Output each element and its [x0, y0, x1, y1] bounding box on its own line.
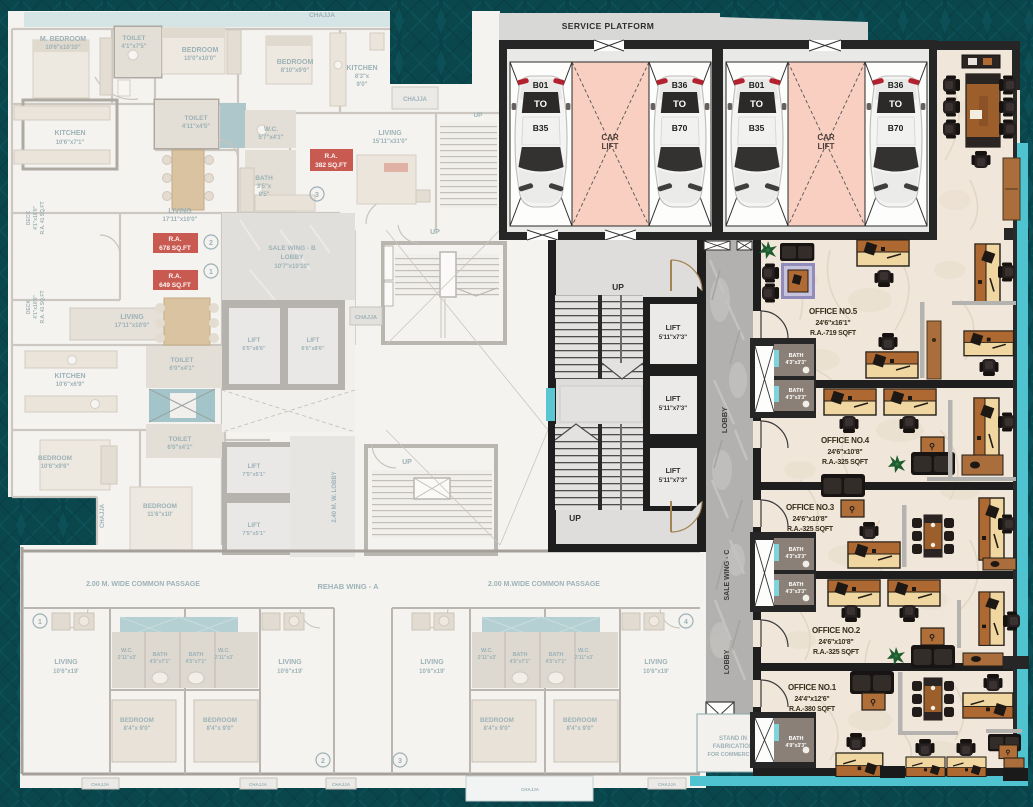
svg-text:TO: TO — [534, 99, 547, 110]
svg-text:STAND IN: STAND IN — [719, 736, 747, 742]
svg-text:CAR: CAR — [601, 133, 619, 142]
svg-text:CHAJJA: CHAJJA — [403, 97, 428, 103]
svg-text:8'10"x9'0": 8'10"x9'0" — [281, 68, 310, 74]
svg-text:R.A. 41 SQ.FT: R.A. 41 SQ.FT — [40, 290, 46, 323]
svg-text:8'4"x 9'0": 8'4"x 9'0" — [484, 726, 511, 732]
svg-text:BATH: BATH — [513, 652, 528, 658]
svg-text:2.40 M. W. LOBBY: 2.40 M. W. LOBBY — [332, 471, 338, 522]
svg-text:TOILET: TOILET — [171, 357, 194, 364]
svg-text:OFFICE NO.4: OFFICE NO.4 — [821, 436, 870, 445]
svg-text:B36: B36 — [672, 80, 688, 90]
svg-text:5'11"x7'3": 5'11"x7'3" — [659, 406, 687, 412]
svg-text:BEDROOM: BEDROOM — [480, 717, 514, 724]
svg-text:BEDROOM: BEDROOM — [277, 59, 314, 66]
svg-text:TO: TO — [673, 99, 686, 110]
svg-text:LIFT: LIFT — [666, 396, 681, 403]
svg-text:W.C.: W.C. — [264, 126, 278, 133]
svg-text:BATH: BATH — [255, 175, 273, 182]
svg-text:BEDROOM: BEDROOM — [120, 717, 154, 724]
svg-text:BATH: BATH — [789, 388, 804, 394]
svg-text:SERVICE PLATFORM: SERVICE PLATFORM — [562, 21, 655, 31]
svg-text:4'5"x7'1": 4'5"x7'1" — [509, 659, 531, 665]
svg-text:KITCHEN: KITCHEN — [54, 373, 85, 380]
svg-text:15'11"x31'0": 15'11"x31'0" — [373, 139, 408, 145]
svg-text:4'1"x10'0": 4'1"x10'0" — [33, 294, 39, 318]
svg-text:B01: B01 — [749, 80, 765, 90]
svg-text:5'7"x4'1": 5'7"x4'1" — [258, 135, 283, 141]
svg-text:10'6"x19': 10'6"x19' — [277, 669, 303, 675]
svg-text:LIVING: LIVING — [120, 314, 144, 321]
svg-text:TOILET: TOILET — [123, 35, 146, 42]
svg-text:B70: B70 — [888, 123, 904, 133]
svg-text:2: 2 — [321, 758, 325, 765]
svg-text:SALE WING - B: SALE WING - B — [268, 245, 316, 252]
svg-text:CHAJJA: CHAJJA — [249, 782, 268, 787]
svg-text:LIVING: LIVING — [378, 130, 402, 137]
svg-text:KITCHEN: KITCHEN — [54, 130, 85, 137]
svg-text:DECK: DECK — [26, 300, 32, 315]
svg-text:2'11"x3': 2'11"x3' — [118, 655, 136, 661]
svg-text:4'3"x3'3": 4'3"x3'3" — [785, 589, 807, 595]
svg-text:382 SQ.FT: 382 SQ.FT — [315, 162, 347, 169]
svg-text:R.A.-325 SQFT: R.A.-325 SQFT — [813, 649, 860, 656]
svg-text:5'11"x7'3": 5'11"x7'3" — [659, 478, 687, 484]
svg-text:LIFT: LIFT — [818, 142, 835, 151]
svg-text:BATH: BATH — [153, 652, 168, 658]
svg-text:R.A.-325 SQFT: R.A.-325 SQFT — [787, 526, 834, 533]
svg-text:CHAJJA: CHAJJA — [100, 503, 106, 528]
svg-text:CHAJJA: CHAJJA — [309, 12, 335, 19]
svg-text:UP: UP — [473, 112, 483, 119]
svg-text:R.A.: R.A. — [169, 273, 182, 280]
svg-text:LIFT: LIFT — [666, 468, 681, 475]
svg-text:CHAJJA: CHAJJA — [332, 782, 351, 787]
svg-text:LIFT: LIFT — [666, 325, 681, 332]
svg-text:678 SQ.FT: 678 SQ.FT — [159, 245, 191, 252]
svg-text:9'0": 9'0" — [357, 82, 368, 88]
svg-text:LIFT: LIFT — [602, 142, 619, 151]
svg-text:UP: UP — [402, 459, 412, 466]
svg-text:B35: B35 — [749, 123, 765, 133]
svg-text:4'1"x10'0": 4'1"x10'0" — [33, 205, 39, 229]
svg-text:R.A.: R.A. — [169, 236, 182, 243]
svg-text:CHAJJA: CHAJJA — [521, 787, 540, 792]
svg-text:6'6"x8'6": 6'6"x8'6" — [301, 346, 325, 352]
svg-text:R.A. 41 SQ.FT: R.A. 41 SQ.FT — [40, 201, 46, 234]
svg-text:2'11"x3': 2'11"x3' — [575, 655, 593, 661]
svg-text:10'6"x19': 10'6"x19' — [643, 669, 669, 675]
svg-text:OFFICE NO.3: OFFICE NO.3 — [786, 503, 835, 512]
svg-text:4'3"x3'3": 4'3"x3'3" — [785, 395, 807, 401]
svg-text:6'0"x4'1": 6'0"x4'1" — [169, 366, 194, 372]
svg-text:W.C.: W.C. — [481, 648, 493, 654]
svg-text:2: 2 — [209, 240, 213, 247]
svg-text:R.A.-719 SQFT: R.A.-719 SQFT — [810, 330, 857, 337]
svg-text:10'6"x19': 10'6"x19' — [53, 669, 79, 675]
svg-text:LIVING: LIVING — [278, 659, 302, 666]
svg-text:BATH: BATH — [549, 652, 564, 658]
svg-text:4'5"x7'1": 4'5"x7'1" — [545, 659, 567, 665]
svg-text:7'5"x5'1": 7'5"x5'1" — [242, 531, 266, 537]
svg-text:LIFT: LIFT — [248, 523, 261, 529]
svg-text:UP: UP — [612, 282, 624, 292]
svg-text:24'6"x10'8": 24'6"x10'8" — [827, 449, 862, 456]
svg-text:UP: UP — [430, 229, 440, 236]
svg-text:10'6"x6'9": 10'6"x6'9" — [56, 382, 85, 388]
svg-text:TOILET: TOILET — [169, 436, 192, 443]
svg-text:24'6"x10'8": 24'6"x10'8" — [792, 516, 827, 523]
svg-text:M. BEDROOM: M. BEDROOM — [40, 36, 86, 43]
svg-text:8'4"x 9'0": 8'4"x 9'0" — [207, 726, 234, 732]
svg-text:LIVING: LIVING — [168, 208, 192, 215]
svg-text:8'4"x 9'0": 8'4"x 9'0" — [567, 726, 594, 732]
svg-text:B01: B01 — [533, 80, 549, 90]
svg-text:2'11"x3': 2'11"x3' — [215, 655, 233, 661]
svg-text:8'4"x 9'0": 8'4"x 9'0" — [124, 726, 151, 732]
svg-text:UP: UP — [569, 513, 581, 523]
svg-text:17'11"x10'0": 17'11"x10'0" — [115, 323, 150, 329]
svg-text:10'6"x7'1": 10'6"x7'1" — [56, 140, 85, 146]
svg-text:LIVING: LIVING — [420, 659, 444, 666]
svg-text:B35: B35 — [533, 123, 549, 133]
svg-text:10'7"x10'10": 10'7"x10'10" — [274, 264, 309, 270]
svg-text:7'5"x5'1": 7'5"x5'1" — [242, 472, 266, 478]
svg-text:BATH: BATH — [789, 547, 804, 553]
svg-text:BATH: BATH — [789, 353, 804, 359]
svg-text:17'11"x10'0": 17'11"x10'0" — [163, 217, 198, 223]
svg-text:4: 4 — [684, 619, 688, 626]
svg-text:BATH: BATH — [789, 736, 804, 742]
svg-text:BEDROOM: BEDROOM — [143, 503, 177, 510]
svg-text:CHAJJA: CHAJJA — [91, 782, 110, 787]
svg-text:5'11"x7'3": 5'11"x7'3" — [659, 335, 687, 341]
svg-text:KITCHEN: KITCHEN — [346, 65, 377, 72]
svg-text:4'9"x3'3": 4'9"x3'3" — [785, 743, 807, 749]
svg-text:OFFICE NO.1: OFFICE NO.1 — [788, 683, 837, 692]
svg-text:R.A.: R.A. — [325, 153, 338, 160]
svg-text:3: 3 — [315, 192, 319, 199]
svg-text:10'0"x10'0": 10'0"x10'0" — [184, 56, 216, 62]
svg-text:2'11"x3': 2'11"x3' — [478, 655, 496, 661]
svg-text:TOILET: TOILET — [185, 115, 208, 122]
svg-text:FABRICATION: FABRICATION — [713, 744, 754, 750]
svg-text:BEDROOM: BEDROOM — [203, 717, 237, 724]
svg-text:W.C.: W.C. — [578, 648, 590, 654]
svg-text:BEDROOM: BEDROOM — [182, 47, 219, 54]
svg-text:TO: TO — [889, 99, 902, 110]
svg-text:TO: TO — [750, 99, 763, 110]
svg-text:1: 1 — [38, 619, 42, 626]
svg-text:LIVING: LIVING — [54, 659, 78, 666]
svg-text:6'5"x8'6": 6'5"x8'6" — [242, 346, 266, 352]
svg-text:LOBBY: LOBBY — [724, 649, 731, 674]
svg-text:W.C.: W.C. — [218, 648, 230, 654]
svg-text:R.A.-380 SQFT: R.A.-380 SQFT — [789, 706, 836, 713]
svg-text:11'6"x10': 11'6"x10' — [147, 512, 173, 518]
svg-text:4'5"x7'1": 4'5"x7'1" — [185, 659, 207, 665]
svg-text:3'5"x: 3'5"x — [257, 184, 272, 190]
svg-text:BEDROOM: BEDROOM — [563, 717, 597, 724]
svg-text:OFFICE NO.5: OFFICE NO.5 — [809, 307, 858, 316]
svg-text:DECK: DECK — [26, 211, 32, 226]
svg-text:REHAB WING - A: REHAB WING - A — [318, 582, 380, 591]
svg-text:4'11"x4'5": 4'11"x4'5" — [182, 124, 210, 130]
svg-text:24'6"x16'1": 24'6"x16'1" — [815, 320, 850, 327]
svg-text:2.00 M. WIDE COMMON PASSAGE: 2.00 M. WIDE COMMON PASSAGE — [86, 581, 200, 588]
svg-text:SALE WING - C: SALE WING - C — [724, 550, 731, 601]
svg-text:CAR: CAR — [817, 133, 835, 142]
svg-text:CHAJJA: CHAJJA — [355, 315, 377, 321]
svg-text:BATH: BATH — [189, 652, 204, 658]
svg-text:B70: B70 — [672, 123, 688, 133]
svg-text:24'6"x10'8": 24'6"x10'8" — [818, 639, 853, 646]
svg-text:4'1"x7'5": 4'1"x7'5" — [121, 44, 146, 50]
svg-text:R.A.-325 SQFT: R.A.-325 SQFT — [822, 459, 869, 466]
svg-text:LOBBY: LOBBY — [281, 254, 304, 261]
svg-text:3: 3 — [398, 758, 402, 765]
svg-text:LIFT: LIFT — [307, 338, 320, 344]
svg-text:10'6"x9'6": 10'6"x9'6" — [41, 464, 70, 470]
svg-text:BEDROOM: BEDROOM — [38, 455, 72, 462]
svg-text:LIFT: LIFT — [248, 338, 261, 344]
svg-text:2.00 M.WIDE COMMON PASSAGE: 2.00 M.WIDE COMMON PASSAGE — [488, 581, 600, 588]
svg-text:24'4"x12'6": 24'4"x12'6" — [794, 696, 829, 703]
svg-text:W.C.: W.C. — [121, 648, 133, 654]
svg-text:649 SQ.FT: 649 SQ.FT — [159, 282, 191, 289]
svg-text:1: 1 — [209, 269, 213, 276]
svg-text:4'5"x7'1": 4'5"x7'1" — [149, 659, 171, 665]
svg-text:BATH: BATH — [789, 582, 804, 588]
svg-text:9'5": 9'5" — [259, 192, 270, 198]
svg-text:8'3"x: 8'3"x — [355, 74, 370, 80]
svg-text:LIVING: LIVING — [644, 659, 668, 666]
svg-text:LIFT: LIFT — [248, 464, 261, 470]
svg-text:OFFICE NO.2: OFFICE NO.2 — [812, 626, 861, 635]
svg-text:B36: B36 — [888, 80, 904, 90]
svg-text:6'0"x4'1": 6'0"x4'1" — [167, 445, 192, 451]
svg-text:4'3"x3'3": 4'3"x3'3" — [785, 360, 807, 366]
svg-text:CHAJJA: CHAJJA — [658, 782, 677, 787]
svg-text:LOBBY: LOBBY — [720, 407, 729, 433]
svg-text:10'6"x10'10": 10'6"x10'10" — [45, 45, 80, 51]
svg-text:4'3"x3'3": 4'3"x3'3" — [785, 554, 807, 560]
svg-text:10'6"x19': 10'6"x19' — [419, 669, 445, 675]
